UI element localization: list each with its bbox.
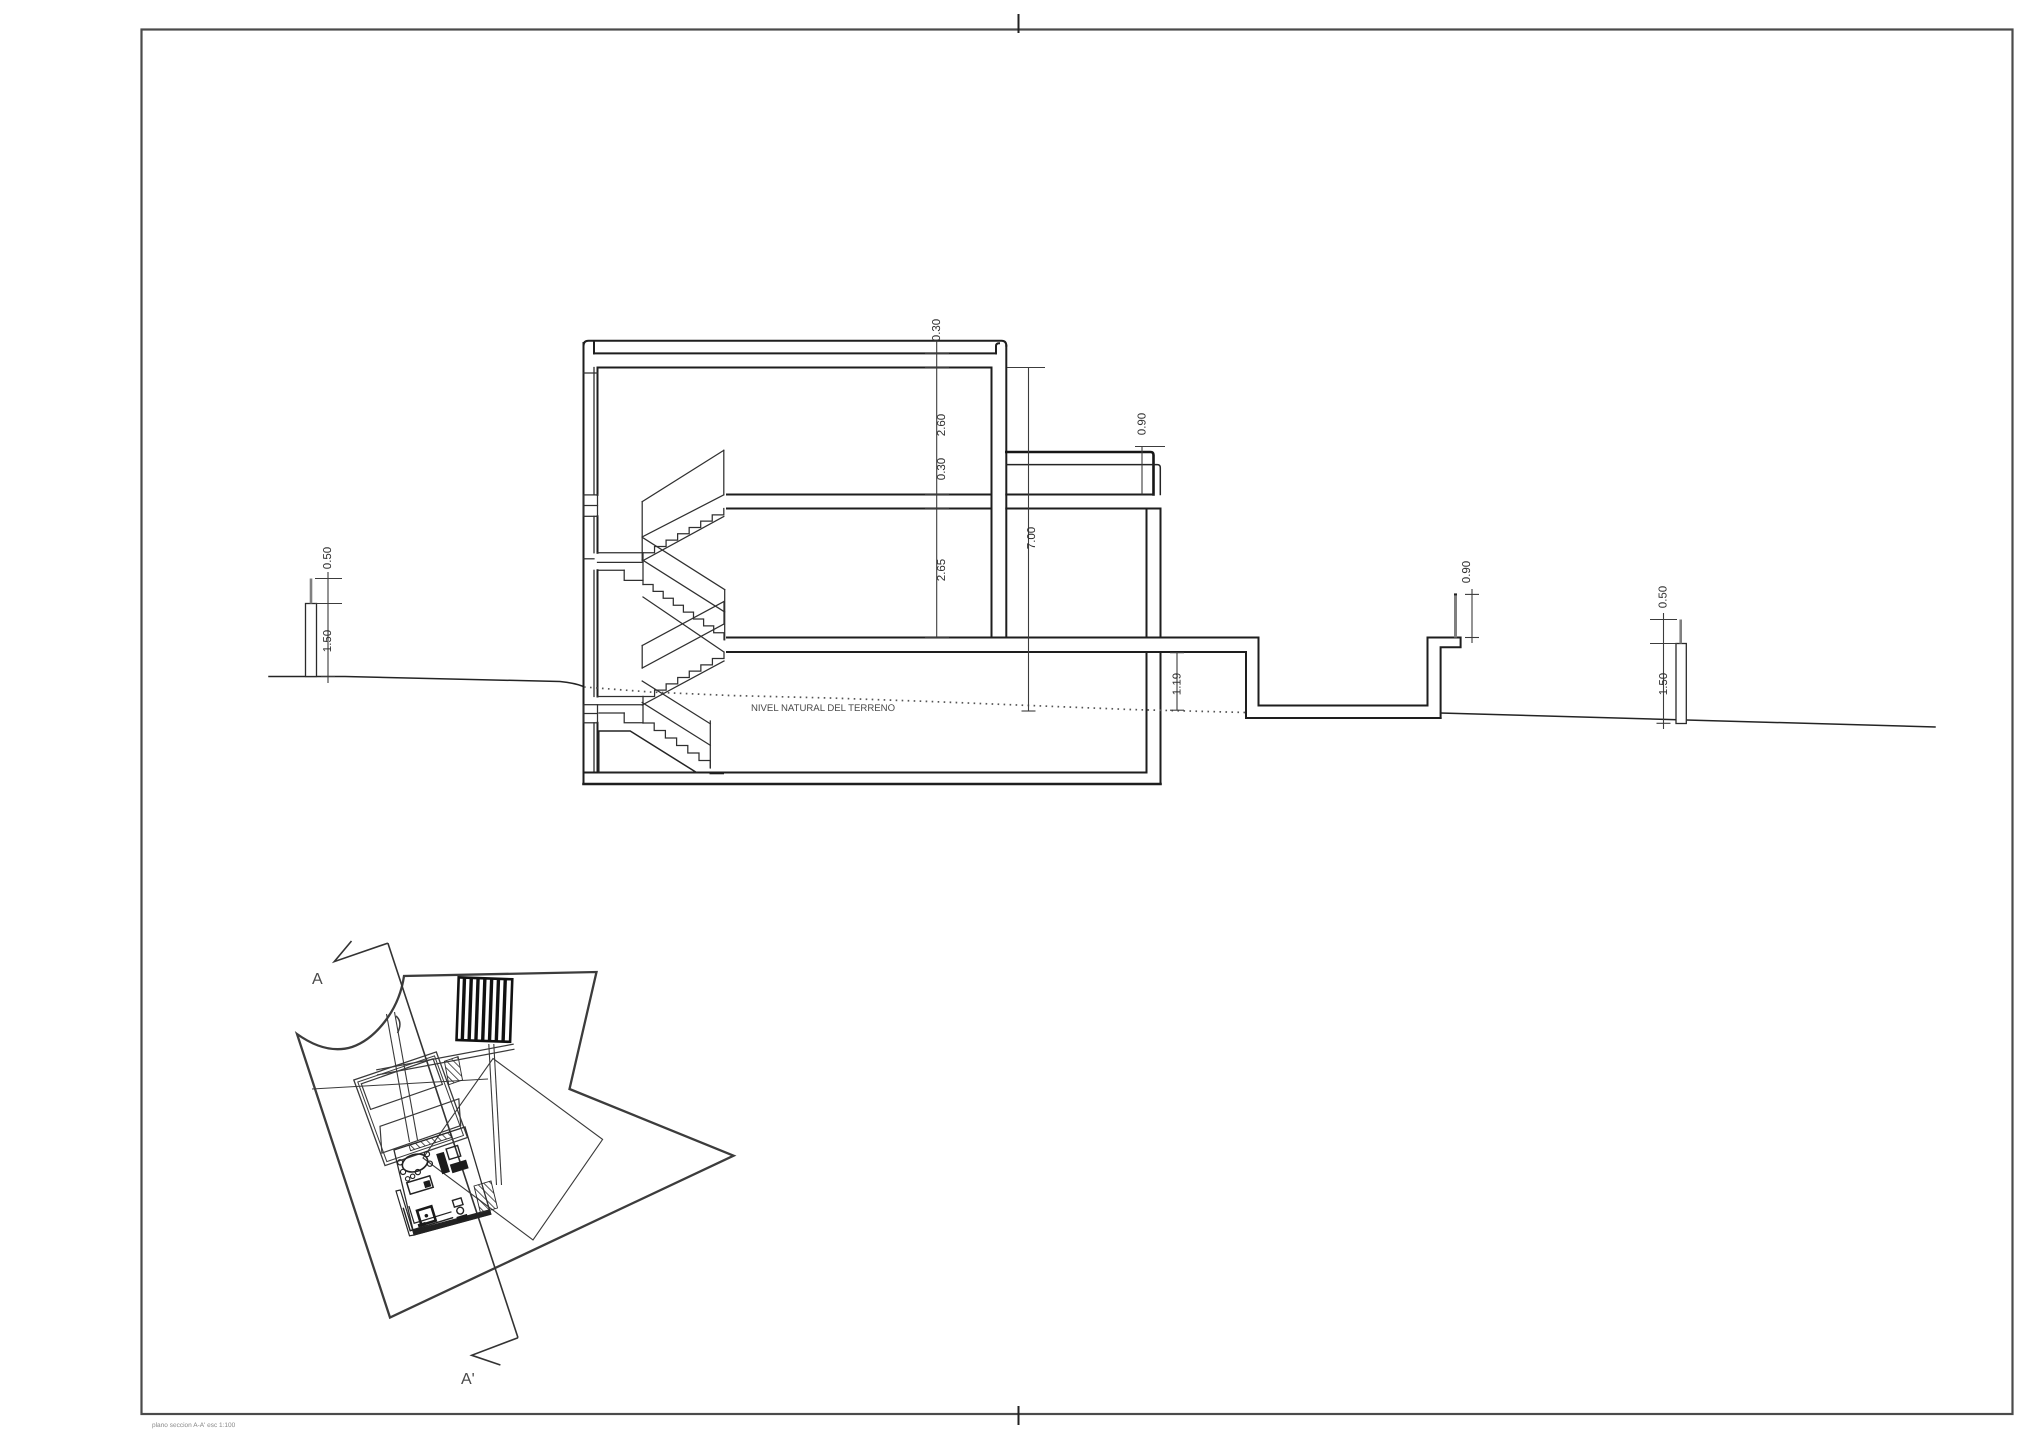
svg-text:1.50: 1.50 [322, 630, 334, 652]
svg-text:0.90: 0.90 [1137, 413, 1149, 435]
svg-text:0.30: 0.30 [936, 458, 948, 480]
svg-text:0.50: 0.50 [322, 547, 334, 569]
svg-text:0.90: 0.90 [1461, 561, 1473, 583]
svg-text:plano seccion A-A' esc 1:1: plano seccion A-A' esc 1:100 [152, 1422, 236, 1429]
svg-text:7.00: 7.00 [1026, 527, 1038, 549]
svg-text:1.50: 1.50 [1658, 673, 1670, 695]
svg-text:1.19: 1.19 [1172, 673, 1184, 695]
svg-text:A: A [312, 971, 323, 988]
svg-text:2.65: 2.65 [936, 559, 948, 581]
svg-text:2.60: 2.60 [936, 414, 948, 436]
svg-text:0.50: 0.50 [1658, 586, 1670, 608]
svg-text:A': A' [461, 1371, 475, 1388]
svg-text:0.30: 0.30 [931, 319, 943, 341]
svg-text:NIVEL NATURAL DEL TERRENO: NIVEL NATURAL DEL TERRENO [751, 703, 895, 714]
